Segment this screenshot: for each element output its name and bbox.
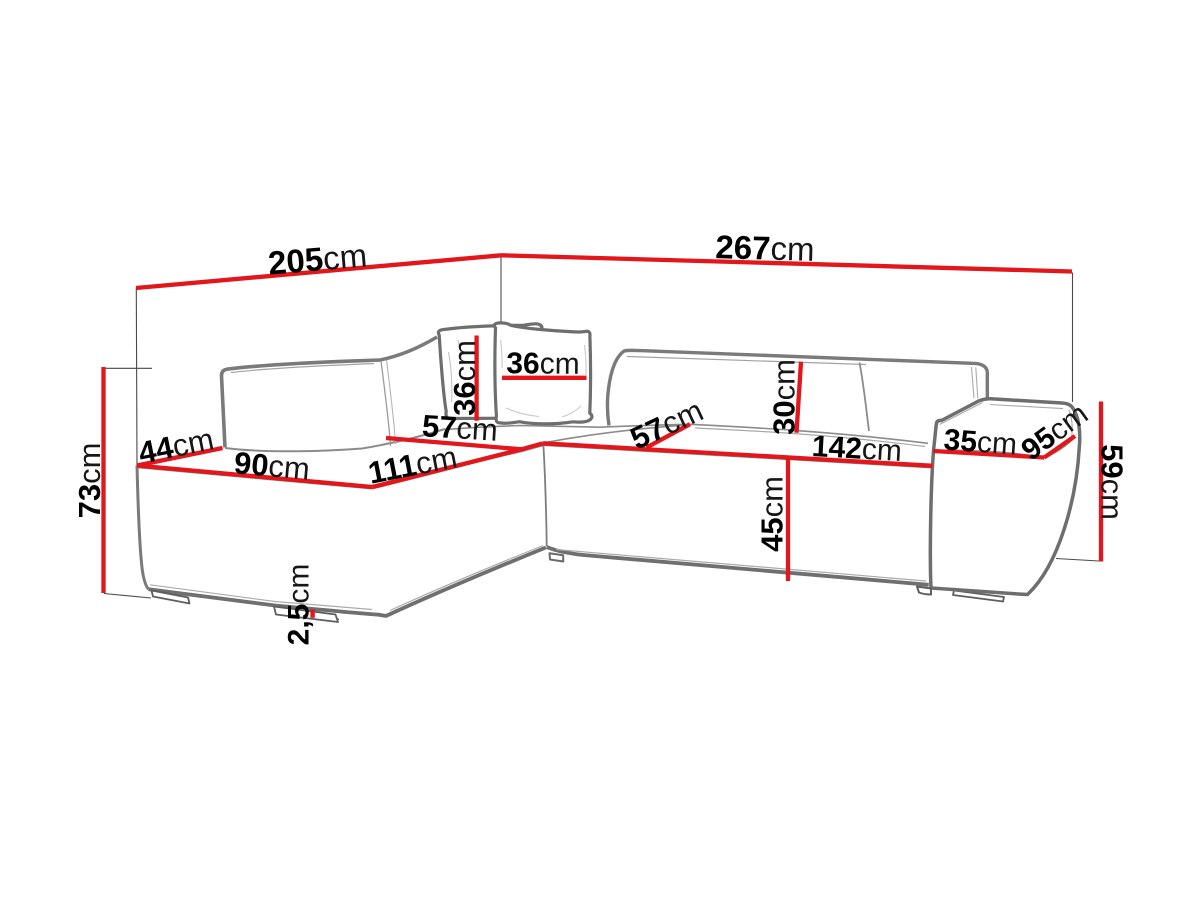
svg-text:205cm: 205cm (267, 236, 369, 281)
svg-text:90cm: 90cm (233, 445, 312, 486)
svg-text:73cm: 73cm (72, 443, 107, 519)
svg-text:2,5cm: 2,5cm (283, 564, 316, 646)
svg-text:59cm: 59cm (1095, 444, 1130, 520)
svg-text:142cm: 142cm (811, 430, 903, 468)
svg-text:36cm: 36cm (506, 347, 580, 381)
svg-text:36cm: 36cm (447, 340, 482, 416)
svg-text:35cm: 35cm (943, 423, 1018, 461)
svg-text:111cm: 111cm (365, 439, 460, 490)
svg-text:45cm: 45cm (755, 476, 790, 552)
svg-text:267cm: 267cm (715, 228, 815, 268)
svg-text:44cm: 44cm (135, 421, 216, 470)
svg-text:30cm: 30cm (767, 359, 802, 435)
